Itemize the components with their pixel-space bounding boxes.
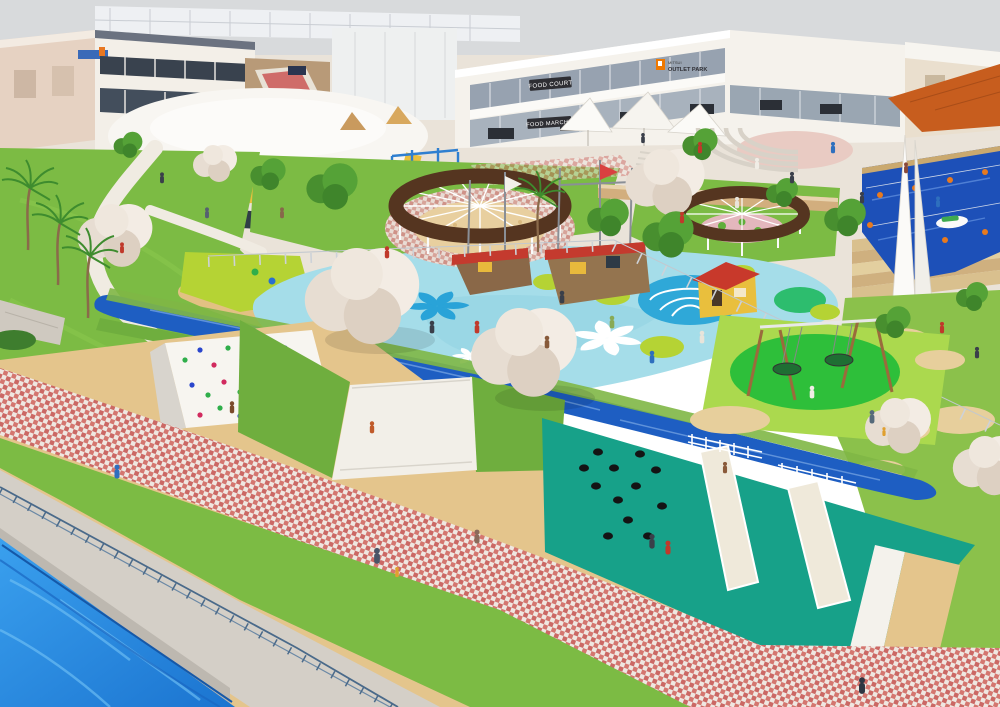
spring-rider — [252, 269, 259, 276]
svg-text:MITSUI: MITSUI — [668, 60, 682, 65]
basket-swing — [773, 363, 801, 375]
aerial-render: FOOD COURT FOOD MARCHE MITSUI OUTLET PAR… — [0, 0, 1000, 707]
tower-logo-mark — [99, 47, 105, 56]
basket-swing — [825, 354, 853, 366]
rendering-canvas: FOOD COURT FOOD MARCHE MITSUI OUTLET PAR… — [0, 0, 1000, 707]
svg-text:OUTLET PARK: OUTLET PARK — [668, 67, 707, 73]
spring-rider — [269, 278, 276, 285]
building-far-left — [0, 30, 95, 152]
